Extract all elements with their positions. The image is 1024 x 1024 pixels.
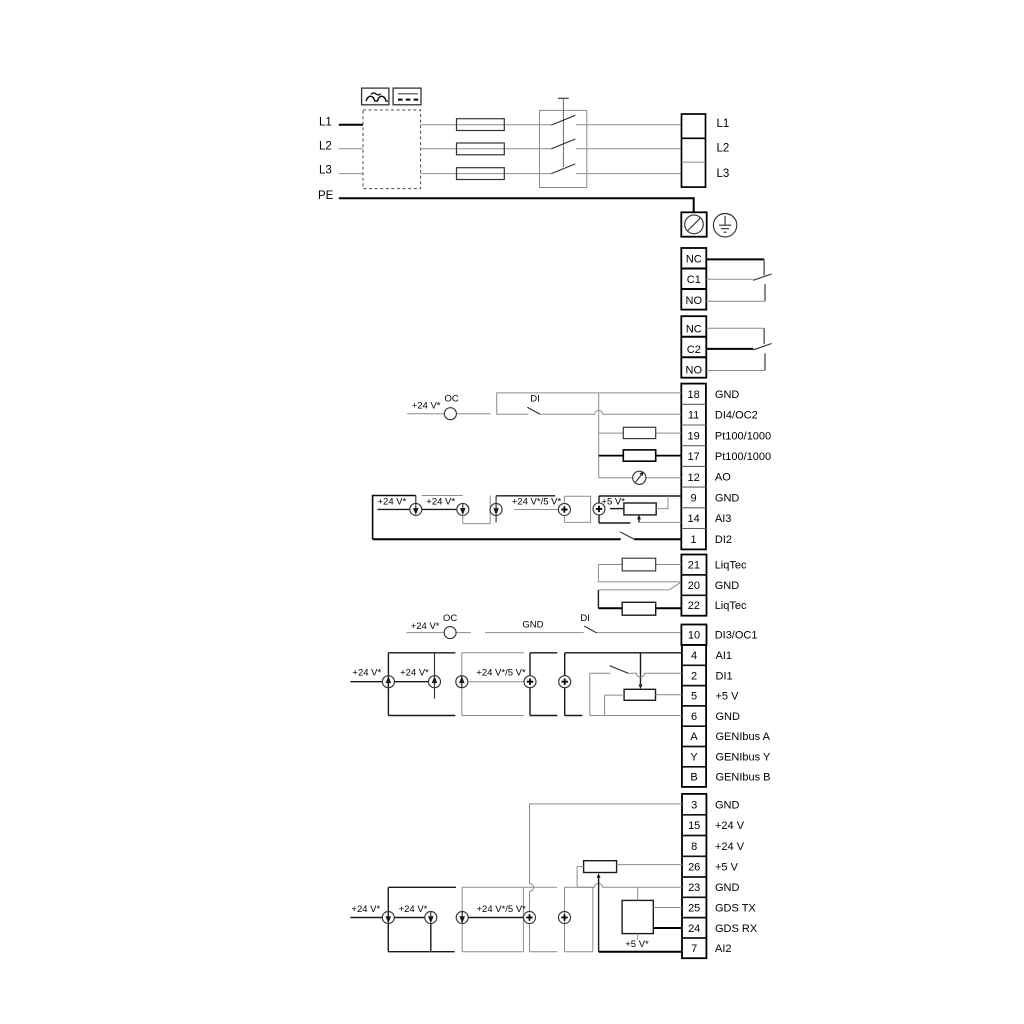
svg-text:4: 4 xyxy=(691,650,697,662)
svg-text:AI3: AI3 xyxy=(715,513,732,525)
svg-text:L3: L3 xyxy=(319,164,332,176)
svg-text:7: 7 xyxy=(691,943,697,955)
svg-text:NO: NO xyxy=(686,295,703,307)
svg-text:+24 V: +24 V xyxy=(715,841,745,853)
svg-text:DI3/OC1: DI3/OC1 xyxy=(715,630,758,642)
svg-text:+24 V*: +24 V* xyxy=(412,400,441,411)
svg-text:C1: C1 xyxy=(687,274,701,286)
svg-text:22: 22 xyxy=(688,600,700,612)
svg-text:Y: Y xyxy=(690,752,698,764)
svg-text:LiqTec: LiqTec xyxy=(715,600,747,612)
svg-text:14: 14 xyxy=(687,513,699,525)
svg-text:8: 8 xyxy=(691,841,697,853)
svg-text:1: 1 xyxy=(691,534,697,546)
svg-text:+24 V*: +24 V* xyxy=(351,904,380,915)
svg-text:DI: DI xyxy=(580,613,590,624)
svg-text:+24 V*: +24 V* xyxy=(352,668,381,679)
svg-text:+5 V*: +5 V* xyxy=(625,939,649,950)
svg-text:DI1: DI1 xyxy=(716,670,733,682)
svg-text:PE: PE xyxy=(318,190,334,202)
svg-text:GND: GND xyxy=(715,492,740,504)
svg-text:21: 21 xyxy=(688,559,700,571)
svg-text:25: 25 xyxy=(688,902,700,914)
svg-text:11: 11 xyxy=(688,410,699,422)
svg-text:3: 3 xyxy=(691,799,697,811)
svg-text:L2: L2 xyxy=(319,141,332,153)
svg-text:10: 10 xyxy=(688,630,700,642)
svg-text:GND: GND xyxy=(715,882,740,894)
svg-text:+24 V: +24 V xyxy=(715,820,745,832)
svg-text:DI: DI xyxy=(530,394,540,405)
svg-text:Pt100/1000: Pt100/1000 xyxy=(715,451,771,463)
svg-text:AI1: AI1 xyxy=(716,650,733,662)
svg-text:18: 18 xyxy=(687,389,699,401)
svg-text:GDS RX: GDS RX xyxy=(715,923,758,935)
svg-text:26: 26 xyxy=(688,862,700,874)
svg-text:+5 V: +5 V xyxy=(715,862,739,874)
svg-text:2: 2 xyxy=(691,670,697,682)
svg-text:+24 V*: +24 V* xyxy=(426,497,455,508)
svg-text:5: 5 xyxy=(691,691,697,703)
svg-text:Pt100/1000: Pt100/1000 xyxy=(715,430,771,442)
svg-text:AO: AO xyxy=(715,472,731,484)
svg-text:23: 23 xyxy=(688,882,700,894)
svg-text:15: 15 xyxy=(688,820,700,832)
svg-text:DI2: DI2 xyxy=(715,534,732,546)
svg-text:+24 V*/5 V*: +24 V*/5 V* xyxy=(476,668,526,679)
svg-text:GDS TX: GDS TX xyxy=(715,902,756,914)
svg-text:L1: L1 xyxy=(319,116,332,128)
svg-text:NC: NC xyxy=(686,253,702,265)
svg-text:A: A xyxy=(690,731,698,743)
svg-text:6: 6 xyxy=(691,711,697,723)
svg-text:12: 12 xyxy=(687,472,699,484)
svg-text:+24 V*: +24 V* xyxy=(400,668,429,679)
svg-text:GENIbus B: GENIbus B xyxy=(716,772,771,784)
svg-text:OC: OC xyxy=(443,613,457,624)
svg-text:+5 V: +5 V xyxy=(716,691,740,703)
svg-text:AI2: AI2 xyxy=(715,943,732,955)
svg-text:L1: L1 xyxy=(717,118,730,130)
svg-text:GENIbus Y: GENIbus Y xyxy=(716,752,771,764)
svg-text:+5 V*: +5 V* xyxy=(601,496,625,507)
svg-text:NO: NO xyxy=(686,365,703,377)
svg-text:GND: GND xyxy=(715,389,740,401)
svg-text:+24 V*/5 V*: +24 V*/5 V* xyxy=(512,497,562,508)
svg-text:DI4/OC2: DI4/OC2 xyxy=(715,410,758,422)
svg-text:GND: GND xyxy=(716,711,741,723)
svg-text:17: 17 xyxy=(687,451,699,463)
svg-text:OC: OC xyxy=(445,394,459,405)
svg-text:24: 24 xyxy=(688,923,700,935)
svg-text:B: B xyxy=(690,772,697,784)
svg-text:C2: C2 xyxy=(687,344,701,356)
svg-text:+24 V*: +24 V* xyxy=(411,621,440,632)
svg-text:GENIbus A: GENIbus A xyxy=(716,731,771,743)
svg-text:9: 9 xyxy=(691,493,697,505)
svg-text:GND: GND xyxy=(715,580,740,592)
svg-text:GND: GND xyxy=(715,799,740,811)
svg-text:NC: NC xyxy=(686,323,702,335)
svg-text:L3: L3 xyxy=(717,168,730,180)
svg-text:GND: GND xyxy=(522,619,543,630)
svg-text:20: 20 xyxy=(688,580,700,592)
svg-text:+24 V*: +24 V* xyxy=(399,904,428,915)
svg-text:L2: L2 xyxy=(717,143,730,155)
svg-text:+24 V*/5 V*: +24 V*/5 V* xyxy=(477,904,527,915)
svg-text:+24 V*: +24 V* xyxy=(378,497,407,508)
svg-text:19: 19 xyxy=(687,430,699,442)
svg-text:LiqTec: LiqTec xyxy=(715,559,747,571)
